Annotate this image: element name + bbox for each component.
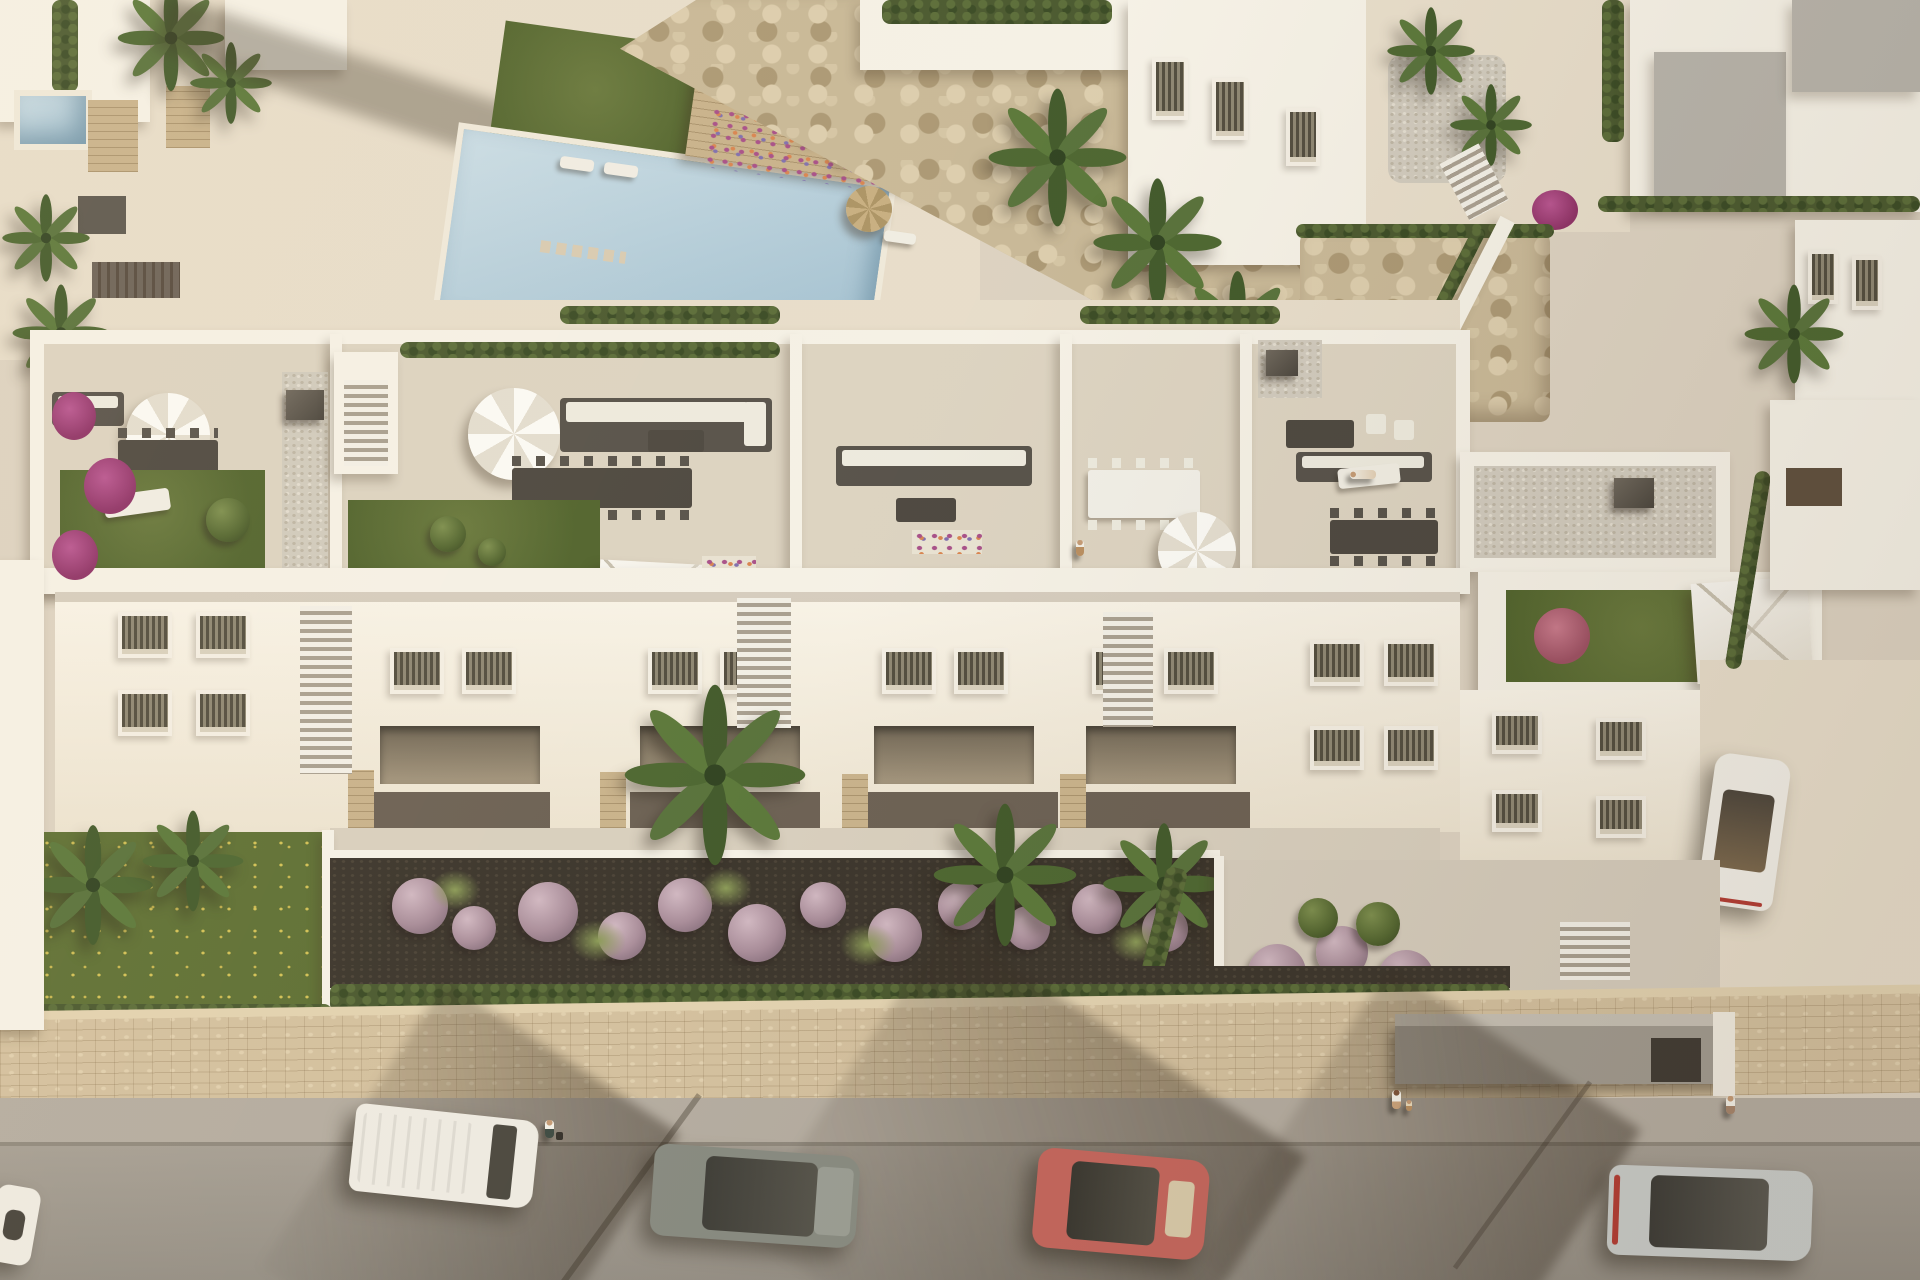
car-glass (1649, 1175, 1769, 1251)
planter-hedge (560, 306, 780, 324)
ac-unit (1266, 350, 1298, 376)
dining-chairs (1330, 508, 1438, 518)
coffee-table (1286, 420, 1354, 448)
purple-bush (452, 906, 496, 950)
car-glass (1066, 1161, 1160, 1246)
green-bush (1356, 902, 1400, 946)
staircase (344, 380, 388, 466)
window-shutter (1496, 716, 1538, 750)
child (1406, 1100, 1412, 1111)
palm-tree (620, 680, 810, 870)
neighbor-terrace (1786, 468, 1842, 506)
palm-tree (1742, 282, 1846, 386)
grass-tuft (430, 870, 480, 910)
coffee-table (896, 498, 956, 522)
gate-pillar (1713, 1012, 1735, 1096)
green-bush (1298, 898, 1338, 938)
window-shutter (1388, 644, 1434, 682)
roof-lawn (348, 500, 600, 568)
window-shutter (886, 652, 932, 690)
grass-tuft (570, 920, 626, 962)
window-shutter (1388, 730, 1434, 766)
balcony (874, 726, 1034, 784)
rear-walkway (350, 300, 1460, 334)
palm-tree (140, 808, 246, 914)
silver-sedan (1606, 1164, 1813, 1261)
window (462, 648, 516, 694)
potted-tree (206, 498, 250, 542)
sunbather (1350, 470, 1376, 479)
van-roof-ribs (357, 1111, 474, 1194)
side-wall (0, 560, 44, 1030)
sofa-cushions (744, 402, 766, 446)
dining-chairs (1330, 556, 1438, 566)
dining-chairs (1088, 458, 1200, 468)
window-shutter (1156, 62, 1184, 116)
stone-clad-wall (88, 100, 138, 172)
shopping-bag (556, 1132, 563, 1140)
flat-grey-roof (1792, 0, 1920, 92)
purple-bush (728, 904, 786, 962)
window-shutter (1314, 644, 1360, 682)
red-compact-car (1031, 1147, 1211, 1262)
sofa-cushions (566, 402, 748, 422)
sofa-cushions (842, 450, 1026, 466)
window (1492, 790, 1542, 832)
balcony (380, 726, 540, 784)
window (1596, 796, 1646, 838)
dining-chairs (512, 456, 692, 466)
window-shutter (1290, 112, 1316, 162)
window-shutter (1496, 794, 1538, 828)
window (1152, 58, 1188, 120)
window-shutter (958, 652, 1004, 690)
front-parapet (30, 568, 1470, 594)
window-shutter (1314, 730, 1360, 766)
hedge (52, 0, 78, 92)
window (1164, 648, 1218, 694)
pink-flowering-shrub (1534, 608, 1590, 664)
gate-door (1651, 1038, 1701, 1082)
car-hood (813, 1166, 854, 1236)
gravel-roof (1474, 466, 1716, 558)
window (954, 648, 1008, 694)
ground-terrace (370, 792, 550, 832)
flat-grey-roof (1654, 52, 1786, 204)
parapet-divider (1060, 334, 1072, 584)
ac-unit (286, 390, 324, 420)
window (1384, 726, 1438, 770)
window-shutter (122, 616, 168, 654)
coffee-table (648, 430, 704, 452)
parapet-divider (790, 334, 802, 584)
stone-column (842, 774, 868, 836)
stone-column (348, 770, 374, 836)
window-shutter (200, 616, 246, 654)
bougainvillea-bush (52, 530, 98, 580)
hedge (1296, 224, 1554, 238)
window (1212, 78, 1248, 140)
palm-tree (0, 192, 92, 284)
window (1596, 718, 1646, 760)
exterior-staircase (300, 606, 352, 774)
hedge (1602, 0, 1624, 142)
window (196, 690, 250, 736)
window-shutter (394, 652, 440, 690)
shrub (430, 516, 466, 552)
window (1286, 108, 1320, 166)
person-on-terrace (1076, 540, 1084, 556)
grey-hatchback (649, 1143, 861, 1249)
window (1310, 640, 1364, 686)
car-glass (702, 1156, 819, 1238)
window-shutter (466, 652, 512, 690)
window (1384, 640, 1438, 686)
bougainvillea-bush (52, 392, 96, 440)
window-shutter (1600, 800, 1642, 834)
purple-bush (800, 882, 846, 928)
window (1492, 712, 1542, 754)
window-shutter (1600, 722, 1642, 756)
palm-tree (30, 822, 156, 948)
hedge (1598, 196, 1920, 212)
garden-steps (1560, 922, 1630, 980)
hedge (882, 0, 1112, 24)
window (390, 648, 444, 694)
planter-hedge (1080, 306, 1280, 324)
car-interior (1164, 1180, 1195, 1238)
window (1310, 726, 1364, 770)
grass-tuft (700, 868, 752, 908)
window-shutter (122, 694, 168, 732)
dining-table (1330, 520, 1438, 554)
shrub (478, 538, 506, 566)
woman-with-child (1392, 1090, 1401, 1109)
dining-table-white (1088, 470, 1200, 518)
pedestrian-with-bag (545, 1120, 554, 1138)
staircase (1103, 612, 1153, 727)
white-parasol (468, 388, 560, 480)
balcony (1086, 726, 1236, 784)
dining-chairs (118, 428, 218, 438)
window (196, 612, 250, 658)
ac-unit (1614, 478, 1654, 508)
aerial-render-scene (0, 0, 1920, 1280)
window-shutter (1216, 82, 1244, 136)
parapet-divider (1240, 334, 1252, 584)
lounge-chair (1366, 414, 1386, 434)
straw-parasol (846, 186, 892, 232)
private-pool (14, 90, 92, 150)
window (118, 612, 172, 658)
planter-hedge (400, 342, 780, 358)
window (1852, 256, 1882, 310)
grass-tuft (840, 924, 896, 966)
woman-walking (1726, 1096, 1735, 1114)
window-shutter (200, 694, 246, 732)
purple-bush (518, 882, 578, 942)
window-shutter (1856, 260, 1878, 306)
window-shutter (1168, 652, 1214, 690)
bougainvillea-bush (84, 458, 136, 514)
car-cabin (1713, 789, 1775, 873)
window (118, 690, 172, 736)
lounge-chair (1394, 420, 1414, 440)
window (882, 648, 936, 694)
flower-planter (912, 530, 982, 554)
